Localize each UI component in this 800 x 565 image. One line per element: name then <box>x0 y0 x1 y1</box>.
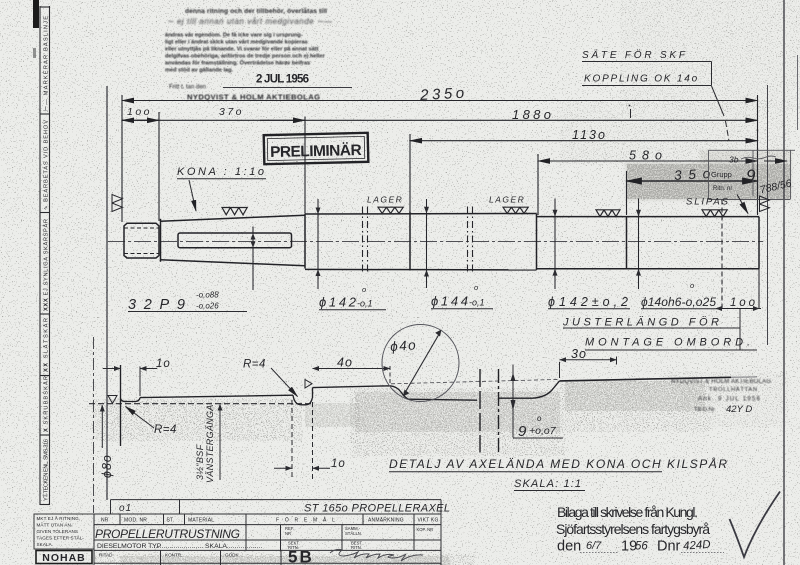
svg-text:KOPPLING OK 14o: KOPPLING OK 14o <box>584 74 698 85</box>
svg-text:Fritt t. tan den: Fritt t. tan den <box>169 85 206 91</box>
svg-text:9: 9 <box>518 423 527 440</box>
svg-text:SKALA.: SKALA. <box>37 542 54 547</box>
svg-text:ANMÄRKNING: ANMÄRKNING <box>368 517 404 524</box>
svg-text:R=4: R=4 <box>154 424 177 436</box>
svg-text:-o,o88: -o,o88 <box>196 291 219 300</box>
svg-text:Till D.Nr: Till D.Nr <box>694 407 715 413</box>
svg-text:Ritn. nr: Ritn. nr <box>713 186 732 192</box>
svg-text:∿ BEARBETAS VID BEHOV: ∿ BEARBETAS VID BEHOV <box>44 120 50 210</box>
svg-text:NR: NR <box>101 518 109 524</box>
svg-text:o: o <box>537 414 542 423</box>
svg-text:denna ritning och der tillbehö: denna ritning och der tillbehör, överlåt… <box>185 7 327 15</box>
svg-text:9: 9 <box>746 166 756 185</box>
svg-text:-o,1: -o,1 <box>469 298 485 308</box>
svg-text:Grupp: Grupp <box>711 170 732 179</box>
svg-text:o1: o1 <box>119 503 132 514</box>
svg-text:ändras vår egendom. De få ick: ändras vår egendom. De få icke vare sig … <box>165 32 303 39</box>
svg-text:35o: 35o <box>674 166 711 183</box>
svg-text:ϕ142: ϕ142 <box>319 295 357 310</box>
svg-text:SÄTE FÖR SKF: SÄTE FÖR SKF <box>582 49 686 61</box>
svg-text:STÄLLN.: STÄLLN. <box>345 531 362 536</box>
svg-text:SKALA: 1:1: SKALA: 1:1 <box>514 478 581 490</box>
svg-text:X SKRUBBSKÄR: X SKRUBBSKÄR <box>43 376 50 432</box>
svg-text:ST 165o PROPELLERAXEL: ST 165o PROPELLERAXEL <box>304 503 450 515</box>
svg-text:MOD. NR: MOD. NR <box>124 518 147 524</box>
svg-text:KOP. NR: KOP. NR <box>417 527 434 532</box>
svg-text:3o: 3o <box>571 347 587 361</box>
svg-text:VIKT KG: VIKT KG <box>418 518 439 524</box>
svg-text:PRELIMINÄR: PRELIMINÄR <box>270 142 362 161</box>
svg-text:DETALJ AV AXELÄNDA MED KONA OC: DETALJ AV AXELÄNDA MED KONA OCH KILSPÅR <box>389 456 727 471</box>
svg-text:KONTR.: KONTR. <box>165 553 182 558</box>
svg-text:56: 56 <box>635 541 648 553</box>
svg-text:PROPELLERUTRUSTNING: PROPELLERUTRUSTNING <box>95 527 240 541</box>
svg-text:SKALA: SKALA <box>205 543 227 550</box>
svg-text:eller utnyttjås på liknande. V: eller utnyttjås på liknande. Vi svarar f… <box>165 46 319 53</box>
svg-text:TROLLHÄTTAN: TROLLHÄTTAN <box>709 386 757 393</box>
svg-text:NR: NR <box>285 531 291 536</box>
svg-text:KONA : 1:1o: KONA : 1:1o <box>177 166 265 178</box>
svg-text:den: den <box>557 539 581 555</box>
svg-text:ϕ14oh6-o,o25: ϕ14oh6-o,o25 <box>641 295 716 309</box>
svg-text:F Ö R E M Å L: F Ö R E M Å L <box>276 517 337 524</box>
svg-text:JUSTERLÄNGD FÖR: JUSTERLÄNGD FÖR <box>562 317 719 329</box>
svg-text:MKT EJ Å RITNING,: MKT EJ Å RITNING, <box>37 515 81 521</box>
svg-text:VÄNSTERGÄNGA: VÄNSTERGÄNGA <box>205 404 215 483</box>
svg-text:XX SLÄTSKÄR: XX SLÄTSKÄR <box>43 318 50 372</box>
svg-text:LAGER: LAGER <box>489 195 525 205</box>
svg-text:1oo: 1oo <box>127 106 150 118</box>
svg-text:MÄTT UTAN AN-: MÄTT UTAN AN- <box>37 522 73 528</box>
svg-text:Ank. 9 JUL 1956: Ank. 9 JUL 1956 <box>698 396 761 403</box>
svg-text:LAGER: LAGER <box>367 195 403 205</box>
svg-text:4o: 4o <box>337 356 353 370</box>
svg-text:Dnr: Dnr <box>657 539 681 555</box>
svg-text:ST.: ST. <box>167 518 175 524</box>
svg-text:delgifvas obehöriga, anförtros: delgifvas obehöriga, anförtros de tredje… <box>165 54 326 60</box>
svg-text:Sjöfartsstyrelsens fartygsbyrå: Sjöfartsstyrelsens fartygsbyrå <box>556 521 710 537</box>
svg-text:RITN.: RITN. <box>351 545 362 550</box>
svg-text:-o,1: -o,1 <box>357 299 373 309</box>
svg-text:o: o <box>474 283 478 292</box>
svg-text:XXX EJ SYNLIGA SKÄRSPÅR: XXX EJ SYNLIGA SKÄRSPÅR <box>43 219 50 311</box>
svg-text:ϕ8o: ϕ8o <box>100 454 114 478</box>
svg-text:-o,o26: -o,o26 <box>196 302 219 311</box>
svg-text:o: o <box>690 281 694 290</box>
svg-text:NOHAB: NOHAB <box>42 552 86 564</box>
svg-text:med stöd av gällande lag.: med stöd av gällande lag. <box>165 68 234 74</box>
svg-text:1o: 1o <box>156 358 171 370</box>
svg-text:37o: 37o <box>219 106 242 118</box>
svg-text:GIVEN TOLERANS: GIVEN TOLERANS <box>37 529 79 534</box>
svg-text:ϕ4o: ϕ4o <box>390 337 418 354</box>
svg-text:∼ ej till annan utan vårt medg: ∼ ej till annan utan vårt medgivande ∼— <box>167 17 333 26</box>
svg-text:5B: 5B <box>288 548 314 565</box>
svg-text:DIESELMOTOR TYP: DIESELMOTOR TYP <box>97 543 162 550</box>
svg-text:NYDQVIST & HOLM AKTIEBOLAG: NYDQVIST & HOLM AKTIEBOLAG <box>671 379 771 385</box>
svg-text:2 JUL 1956: 2 JUL 1956 <box>256 74 309 86</box>
svg-text:58o: 58o <box>629 149 663 163</box>
svg-text:MONTAGE OMBORD.: MONTAGE OMBORD. <box>585 337 750 349</box>
svg-text:3½"BSF: 3½"BSF <box>195 444 205 480</box>
svg-text:SLIPAS: SLIPAS <box>686 197 729 208</box>
svg-text:användas för framställning. Öv: användas för framställning. Överträdelse… <box>165 60 310 67</box>
svg-text:R=4: R=4 <box>243 359 266 371</box>
svg-text:113o: 113o <box>572 128 606 142</box>
svg-text:1o: 1o <box>331 458 346 470</box>
svg-text:ligt eller i ändrat skick utan: ligt eller i ändrat skick utan vårt medg… <box>165 39 308 46</box>
svg-text:RITAD: RITAD <box>99 553 113 558</box>
svg-text:o: o <box>362 285 366 294</box>
svg-text:42Y D: 42Y D <box>726 404 752 415</box>
svg-text:6/7: 6/7 <box>586 540 602 552</box>
svg-text:3b: 3b <box>729 155 739 165</box>
svg-text:Bilaga till skrivelse från Kun: Bilaga till skrivelse från Kungl. <box>557 504 698 520</box>
svg-text:MATERIAL: MATERIAL <box>188 518 214 524</box>
svg-text:+o,o7: +o,o7 <box>529 425 557 437</box>
svg-text:GODK.: GODK. <box>225 553 240 558</box>
svg-text:TAGES EFTER STÅL-: TAGES EFTER STÅL- <box>37 535 85 541</box>
svg-text:424D: 424D <box>683 539 711 553</box>
svg-text:YT-TECKEN ENL. SMS-316: YT-TECKEN ENL. SMS-316 <box>44 439 50 501</box>
svg-text:1oo: 1oo <box>730 297 756 309</box>
